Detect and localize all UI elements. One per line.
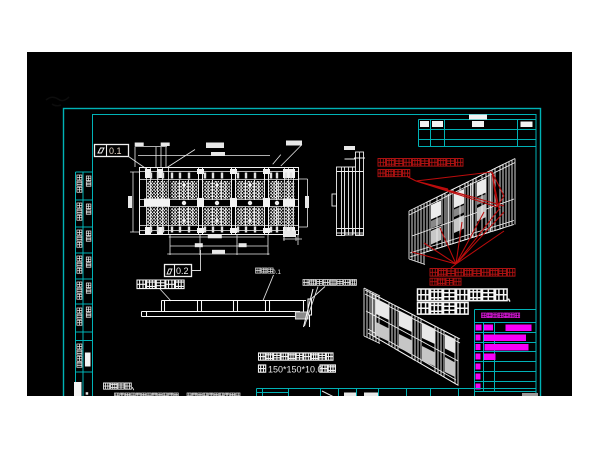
svg-text:0.1: 0.1 [272,269,281,276]
svg-text:0.2: 0.2 [176,266,189,276]
svg-text:150*150*10.0: 150*150*10.0 [268,365,323,375]
svg-text:0.1: 0.1 [109,146,122,156]
